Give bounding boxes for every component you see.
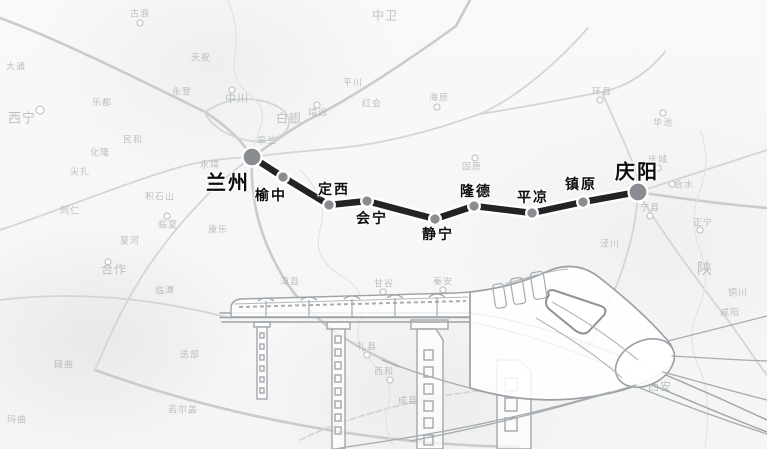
station-labels-layer: 兰州榆中定西会宁静宁隆德平凉镇原庆阳 xyxy=(0,0,767,449)
station-label: 隆德 xyxy=(460,181,492,201)
station-label: 镇原 xyxy=(565,174,597,194)
station-label: 会宁 xyxy=(356,208,388,228)
station-label: 定西 xyxy=(318,179,350,199)
station-label: 庆阳 xyxy=(615,156,659,185)
station-label: 平凉 xyxy=(517,187,549,207)
station-label: 榆中 xyxy=(255,185,287,205)
station-label: 静宁 xyxy=(422,224,454,244)
route-map-figure: 古浪天祝永登中川皋兰白银靖远平川红会海原中卫西宁大通乐都民和化隆尖扎同仁积石山临… xyxy=(0,0,767,449)
station-label: 兰州 xyxy=(206,167,250,196)
